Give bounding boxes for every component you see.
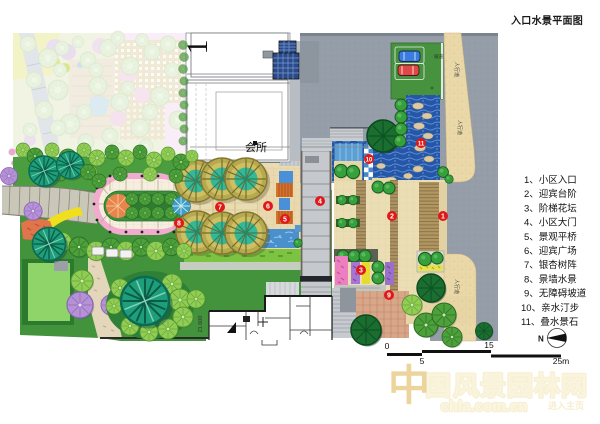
svg-text:9: 9 xyxy=(387,293,391,300)
svg-text:网: 网 xyxy=(561,371,587,401)
svg-text:5、景观平桥: 5、景观平桥 xyxy=(524,231,577,243)
svg-text:11: 11 xyxy=(418,142,425,148)
svg-text:10: 10 xyxy=(366,158,373,164)
svg-text:7、银杏树阵: 7、银杏树阵 xyxy=(524,259,577,271)
svg-text:8、景墙水景: 8、景墙水景 xyxy=(524,273,577,285)
svg-text:5: 5 xyxy=(283,217,287,224)
svg-text:8: 8 xyxy=(177,221,181,228)
svg-text:国: 国 xyxy=(425,371,451,401)
svg-text:中: 中 xyxy=(388,362,430,409)
svg-text:坡道: 坡道 xyxy=(434,53,443,60)
svg-text:6: 6 xyxy=(266,204,270,211)
svg-text:25m: 25m xyxy=(553,356,570,366)
svg-text:会所: 会所 xyxy=(245,141,267,154)
svg-text:人行道: 人行道 xyxy=(456,120,463,135)
svg-text:7: 7 xyxy=(218,205,222,212)
svg-text:人行道: 人行道 xyxy=(453,279,460,294)
svg-text:3: 3 xyxy=(359,268,363,275)
svg-text:chla.com.cn: chla.com.cn xyxy=(441,398,528,415)
svg-text:21.600: 21.600 xyxy=(198,316,204,333)
svg-text:2: 2 xyxy=(390,214,394,221)
svg-text:N: N xyxy=(538,335,544,344)
svg-text:15: 15 xyxy=(484,340,494,350)
svg-text:11、叠水景石: 11、叠水景石 xyxy=(521,316,578,328)
svg-text:3、阶梯花坛: 3、阶梯花坛 xyxy=(524,202,577,214)
svg-text:园: 园 xyxy=(507,371,533,401)
svg-text:10、亲水汀步: 10、亲水汀步 xyxy=(521,302,579,314)
svg-text:风: 风 xyxy=(453,371,479,401)
svg-text:0: 0 xyxy=(385,341,390,351)
svg-text:6、迎宾广场: 6、迎宾广场 xyxy=(524,245,577,257)
svg-text:入口水景平面图: 入口水景平面图 xyxy=(511,14,583,27)
svg-text:4、小区大门: 4、小区大门 xyxy=(524,217,577,229)
svg-text:景: 景 xyxy=(480,371,506,401)
svg-text:9、无障碍坡道: 9、无障碍坡道 xyxy=(524,288,587,300)
svg-text:2、迎宾台阶: 2、迎宾台阶 xyxy=(524,188,577,200)
svg-text:1、小区入口: 1、小区入口 xyxy=(524,175,577,186)
svg-text:1: 1 xyxy=(441,214,445,221)
svg-text:人行道: 人行道 xyxy=(453,62,460,77)
svg-text:4: 4 xyxy=(318,199,322,206)
svg-text:林: 林 xyxy=(534,371,560,401)
svg-text:进入主页: 进入主页 xyxy=(548,400,584,411)
